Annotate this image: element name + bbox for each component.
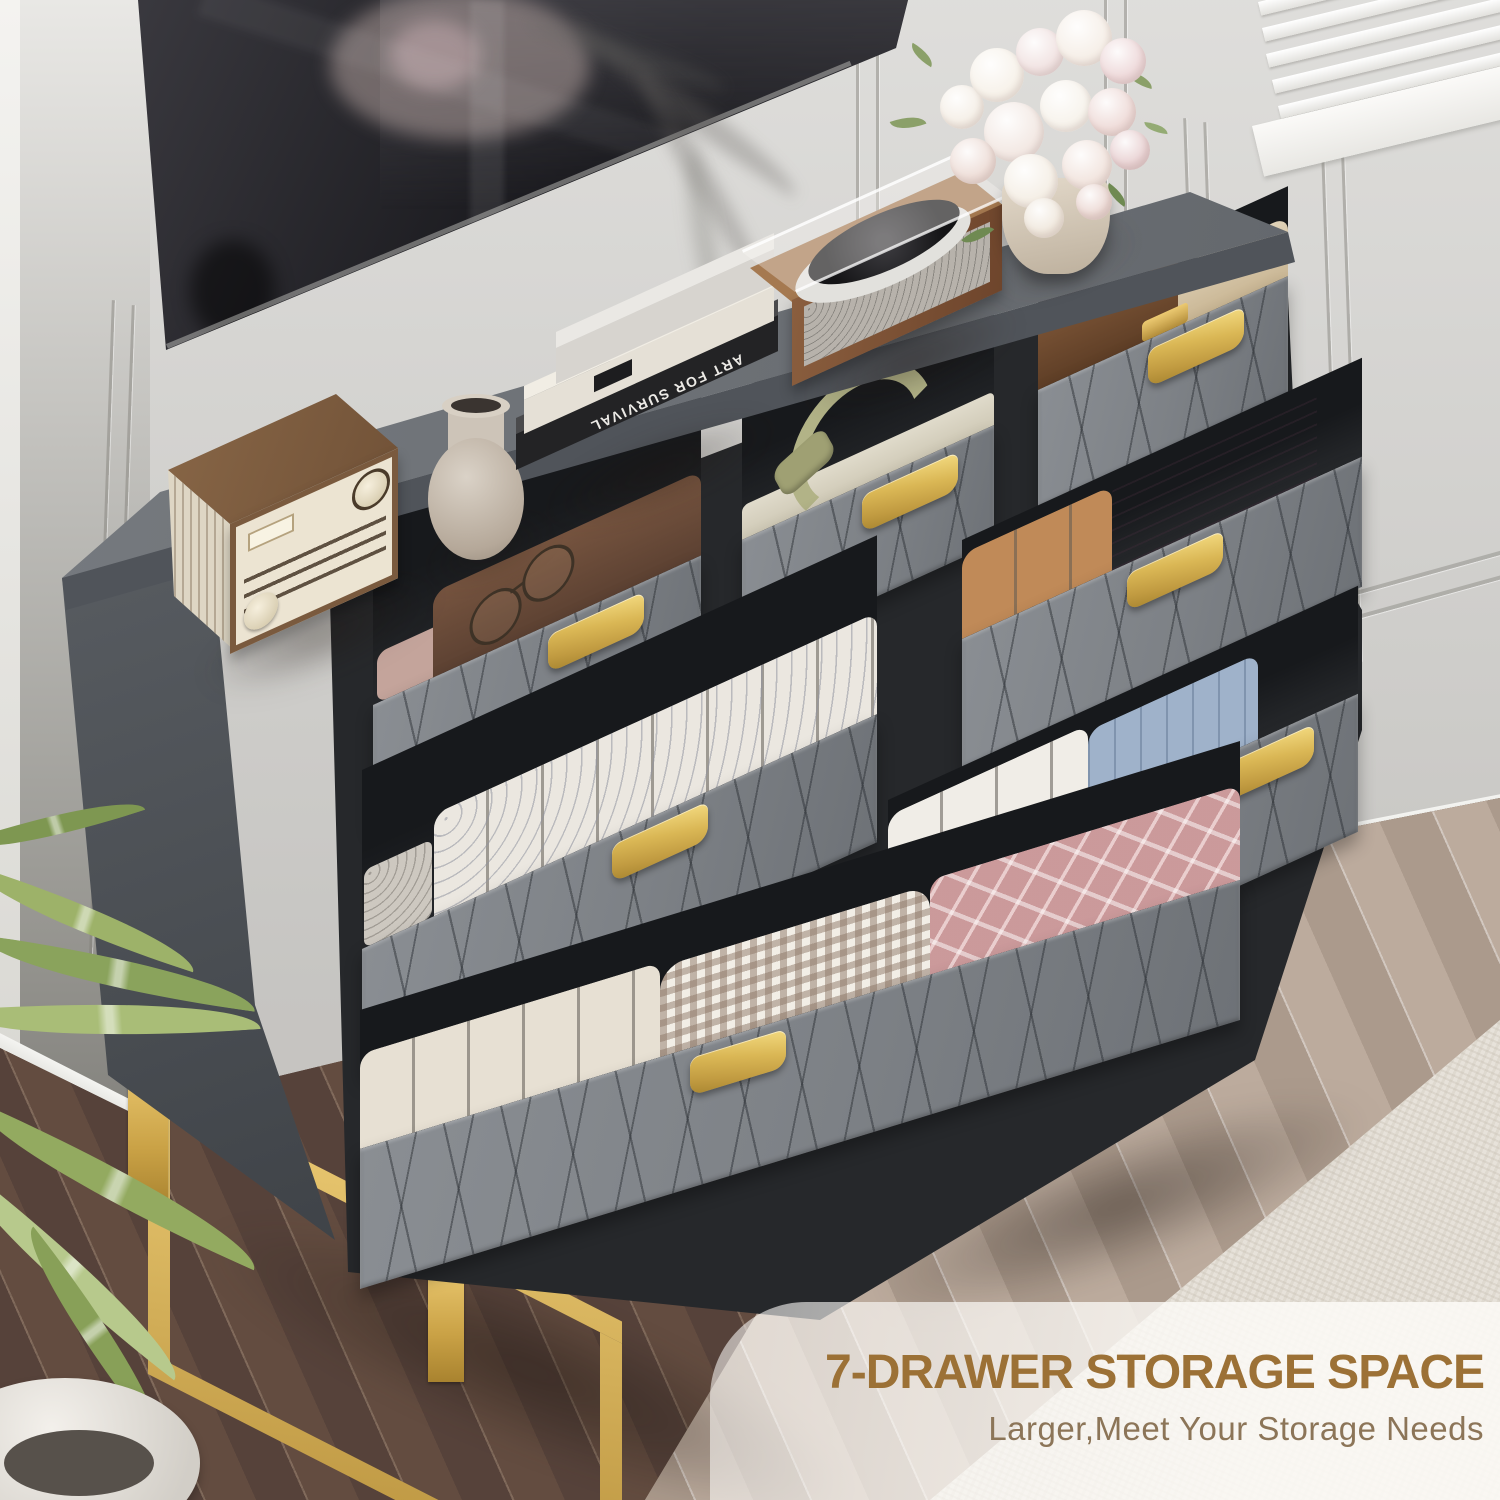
- overlay-subtitle: Larger,Meet Your Storage Needs: [988, 1412, 1484, 1445]
- tv-reflection-flowers: [390, 20, 480, 90]
- chair-rail: [1152, 570, 1500, 675]
- plant-pot-soil: [4, 1430, 154, 1496]
- vase-mouth: [451, 398, 501, 413]
- plant-leaf: [0, 935, 260, 1012]
- wall-groove: [88, 300, 115, 980]
- left-door-trim: [0, 0, 20, 1090]
- knit-basket: [364, 839, 432, 948]
- vase-neck: [448, 402, 504, 452]
- wall-groove: [1203, 122, 1223, 622]
- drawer-handle: [862, 452, 958, 534]
- plant-shadow: [519, 18, 731, 91]
- drawer-contents-floral-rolls: [434, 612, 877, 916]
- wall-groove: [1124, 0, 1127, 212]
- drawer-top-left: [373, 341, 701, 827]
- drawer-handle: [1148, 306, 1244, 388]
- wall-shading: [0, 0, 1500, 1100]
- plant-shadow: [557, 19, 814, 198]
- tv-bottom-edge: [166, 61, 852, 349]
- wall-groove: [1341, 152, 1362, 662]
- drawer-contents-mauve-clothes: [1112, 387, 1317, 570]
- record-box-top: [748, 168, 1008, 308]
- radio-dial-window: [248, 513, 294, 552]
- tv-reflection-carpet: [380, 0, 920, 210]
- drawer-contents-mat: [742, 391, 994, 540]
- drawer-contents-beige-rolls: [360, 962, 660, 1149]
- tv-reflection-flowers: [330, 0, 590, 140]
- gold-leg-frame: [148, 1080, 622, 1500]
- wall-groove: [876, 0, 879, 306]
- decor-shadow: [988, 213, 1142, 306]
- plant-shadow: [667, 149, 743, 340]
- radio-knob: [352, 462, 390, 517]
- decor-shadow: [418, 505, 563, 595]
- tv-reflection-books: [558, 141, 862, 318]
- gold-leg: [428, 1262, 464, 1382]
- radio-speaker-lines: [244, 506, 386, 614]
- dresser-top-decor: ART FOR SURVIVAL: [0, 0, 1500, 1500]
- book-top-cover: [516, 299, 778, 434]
- radio-front: [230, 448, 398, 654]
- plant-leaf: [0, 989, 261, 1050]
- drawer-contents-gingham-roll: [660, 885, 930, 1058]
- tv-screen: [130, 0, 920, 360]
- record-box-inlay: [804, 222, 990, 367]
- drawer-top-middle: [742, 273, 994, 658]
- plant-leaf: [0, 1164, 199, 1380]
- left-wall: [0, 0, 150, 1120]
- drawer-contents-pouch: [377, 620, 449, 703]
- drawer-top-right: [1038, 186, 1288, 508]
- drawer-contents-blue-shirt: [1088, 653, 1258, 816]
- book-black: [516, 315, 778, 470]
- drawer-contents-white-towels: [888, 725, 1088, 908]
- wall-groove: [1104, 0, 1107, 218]
- plant-leaf: [0, 866, 204, 973]
- book-cream: [524, 287, 774, 434]
- plant-leaf: [7, 1227, 182, 1437]
- radio-top: [150, 380, 410, 540]
- tv-reflection-box: [770, 110, 920, 210]
- drawer-bottom-right: [888, 586, 1358, 1046]
- marketing-overlay-panel: 7-DRAWER STORAGE SPACE Larger,Meet Your …: [710, 1302, 1500, 1500]
- book-gray-top: [556, 233, 774, 348]
- dresser-top-surface: [55, 150, 1305, 650]
- potted-plant: [0, 0, 1500, 1500]
- acrylic-lid: [742, 150, 1012, 300]
- drawer-middle-left: [362, 535, 877, 1077]
- acrylic-lid-edge: [742, 153, 957, 252]
- vase-lip: [442, 394, 510, 418]
- drawer-handle: [612, 801, 708, 883]
- tv-reflection-vase: [190, 240, 275, 340]
- vase-body: [428, 438, 524, 560]
- record-platter: [783, 186, 983, 323]
- dresser-side-panel: [55, 450, 355, 1270]
- drawer-handle: [548, 591, 644, 673]
- wall-groove: [1321, 148, 1342, 663]
- radio-left-grille: [150, 440, 250, 670]
- decor-shadow: [787, 287, 1032, 433]
- baseboard-left: [0, 1028, 141, 1132]
- overlay-title: 7-DRAWER STORAGE SPACE: [825, 1349, 1484, 1397]
- dresser: [0, 0, 1500, 1500]
- background-wall: [0, 0, 1500, 1500]
- book-gray: [556, 249, 774, 384]
- eyeglasses: [463, 528, 592, 655]
- product-image-dresser-scene: ART FOR SURVIVAL: [0, 0, 1500, 1500]
- bouquet-greens: [930, 0, 1180, 290]
- radio-knob: [244, 586, 278, 635]
- drawer-contents-beige-cloth: [1178, 216, 1288, 326]
- window-sill: [1252, 65, 1500, 176]
- wall-groove: [856, 0, 859, 312]
- drawer-contents-tan-rolls: [962, 486, 1112, 639]
- baseboard-right: [1100, 794, 1500, 898]
- drawer-handle: [1218, 724, 1314, 806]
- drawer-handle: [1127, 530, 1223, 612]
- plant-leaf: [0, 1102, 271, 1271]
- gold-leg: [128, 1058, 168, 1208]
- book-cream-top: [524, 273, 774, 400]
- tv-light-streak: [197, 0, 703, 175]
- drawer-contents-pink-quilt: [930, 785, 1240, 975]
- record-disc: [798, 183, 971, 302]
- bouquet-vase: [1002, 178, 1110, 274]
- dresser-top-edge: [55, 150, 1305, 670]
- headphones: [770, 343, 920, 521]
- book-spine-label: ART FOR SURVIVAL: [558, 351, 747, 448]
- drawer-contents-wood-box: [1038, 258, 1178, 390]
- dresser-carcass: [320, 180, 1380, 1340]
- acrylic-lid-edge: [795, 195, 1008, 293]
- drawer-middle-right: [962, 358, 1362, 769]
- decor-shadow: [528, 393, 792, 546]
- drawer-contents-brown-cloth: [433, 471, 701, 678]
- wall-groove: [1183, 118, 1204, 623]
- record-box-front: [792, 204, 1002, 386]
- drawer-handle: [690, 1029, 786, 1096]
- plant-shadow: [615, 64, 785, 287]
- plant-pot: [0, 1378, 200, 1500]
- plant-leaf: [0, 785, 145, 865]
- gold-clutch: [1142, 302, 1188, 343]
- tv-light-streak: [470, 0, 504, 360]
- wall-groove: [108, 305, 135, 980]
- book-label: [594, 359, 632, 392]
- chair-rail: [1150, 546, 1500, 651]
- floor: [0, 0, 1500, 1500]
- drawer-bottom-left: [360, 741, 1240, 1289]
- decor-shadow: [186, 554, 453, 716]
